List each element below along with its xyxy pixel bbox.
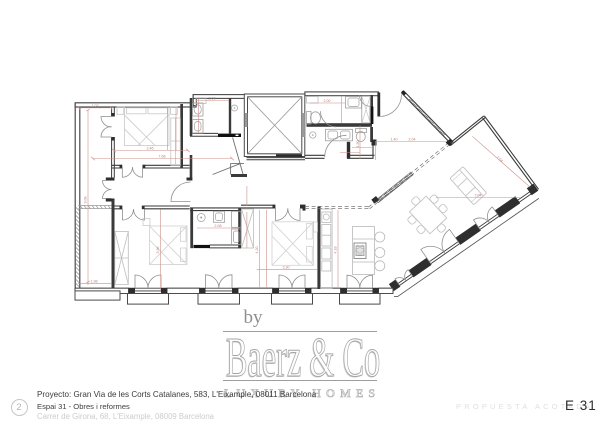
svg-text:2.08: 2.08 (209, 97, 216, 101)
svg-text:1.40: 1.40 (391, 138, 398, 142)
svg-text:9.08: 9.08 (84, 197, 88, 204)
svg-text:7.68: 7.68 (159, 155, 166, 159)
svg-text:3.30: 3.30 (283, 265, 290, 269)
svg-text:2.04: 2.04 (409, 138, 416, 142)
svg-text:3.96: 3.96 (156, 247, 160, 254)
svg-text:1.07: 1.07 (92, 104, 99, 108)
svg-text:2.00: 2.00 (324, 99, 331, 103)
svg-text:7.04: 7.04 (496, 155, 504, 163)
svg-text:4.20: 4.20 (255, 247, 259, 254)
svg-text:1.98: 1.98 (91, 279, 98, 283)
svg-text:2.08: 2.08 (215, 224, 222, 228)
svg-text:4.18: 4.18 (334, 247, 338, 254)
svg-text:7.04: 7.04 (475, 194, 482, 198)
svg-text:1.50: 1.50 (356, 141, 360, 148)
svg-text:3.46: 3.46 (147, 147, 154, 151)
